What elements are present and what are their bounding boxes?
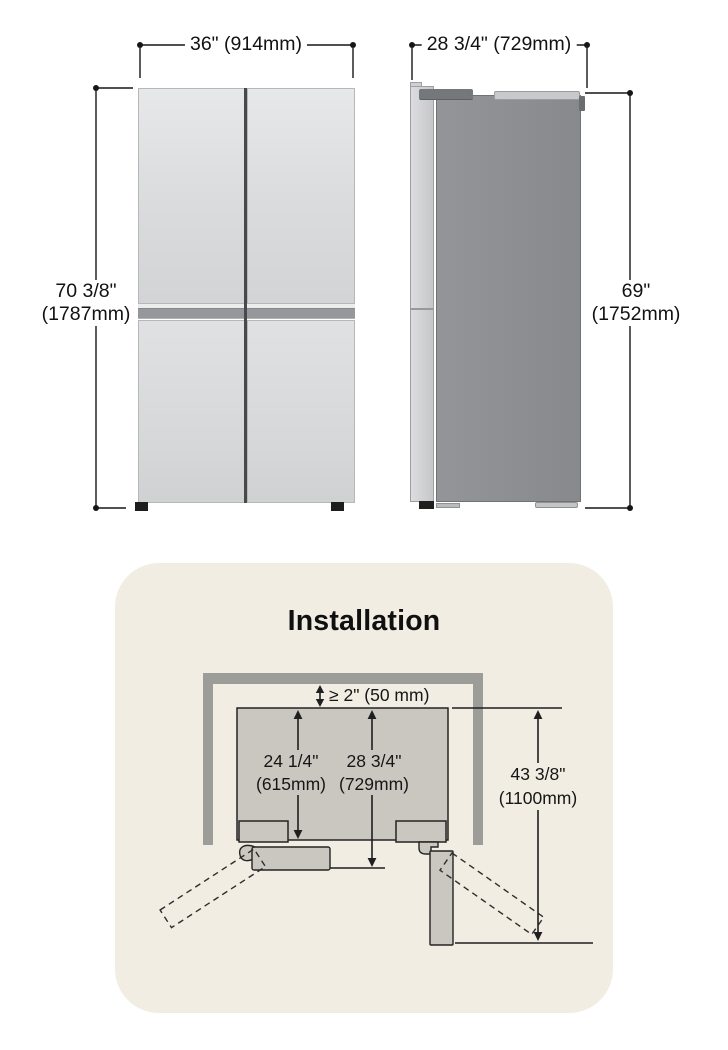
clearance-label: ≥ 2" (50 mm): [326, 684, 432, 707]
side-depth-label: 28 3/4" (729mm): [422, 33, 577, 56]
depth-with-door-label: 28 3/4" (729mm): [335, 750, 413, 795]
front-upper-left-door: [138, 88, 246, 304]
side-front-hinge-cover: [419, 89, 473, 100]
door-swing-dashed-outlines: [160, 849, 544, 934]
left-door-closed: [240, 845, 330, 870]
front-upper-right-door: [247, 88, 355, 304]
side-height-inches: 69": [592, 280, 681, 303]
dimension-lines-overlay: [0, 0, 728, 540]
depth-with-door-mm: (729mm): [339, 773, 409, 796]
cabinet-depth-mm: (615mm): [256, 773, 326, 796]
front-height-mm: (1787mm): [42, 303, 131, 326]
side-rear-tab: [579, 96, 585, 111]
side-door-split-line: [410, 308, 434, 310]
door-open-depth-mm: (1100mm): [499, 787, 577, 811]
side-cabinet-body: [436, 95, 581, 502]
front-height-inches: 70 3/8": [42, 280, 131, 303]
installation-title: Installation: [115, 605, 613, 638]
cabinet-depth-label: 24 1/4" (615mm): [252, 750, 330, 795]
fridge-front-view: [138, 88, 355, 503]
door-open-depth-inches: 43 3/8": [499, 763, 577, 787]
side-height-label: 69" (1752mm): [587, 280, 686, 326]
side-height-mm: (1752mm): [592, 303, 681, 326]
front-center-divider: [244, 88, 247, 503]
side-rear-roller: [535, 502, 578, 508]
cabinet-depth-inches: 24 1/4": [256, 750, 326, 773]
front-left-foot: [135, 502, 148, 511]
side-door-panel: [410, 86, 434, 502]
side-front-base-trim: [436, 503, 460, 508]
front-width-label: 36" (914mm): [185, 33, 307, 56]
front-height-label: 70 3/8" (1787mm): [37, 280, 136, 326]
front-right-foot: [331, 502, 344, 511]
right-door-open: [419, 842, 453, 945]
front-lower-right-door: [247, 320, 355, 503]
refrigerator-dimensions-figure: 36" (914mm) 28 3/4" (729mm) 70 3/8" (178…: [0, 0, 728, 1050]
product-views-section: 36" (914mm) 28 3/4" (729mm) 70 3/8" (178…: [0, 0, 728, 540]
side-front-foot: [419, 501, 434, 509]
installation-panel: Installation: [115, 563, 613, 1013]
side-rear-top-cover: [494, 91, 580, 100]
door-open-depth-label: 43 3/8" (1100mm): [496, 763, 580, 810]
front-lower-left-door: [138, 320, 246, 503]
depth-with-door-inches: 28 3/4": [339, 750, 409, 773]
